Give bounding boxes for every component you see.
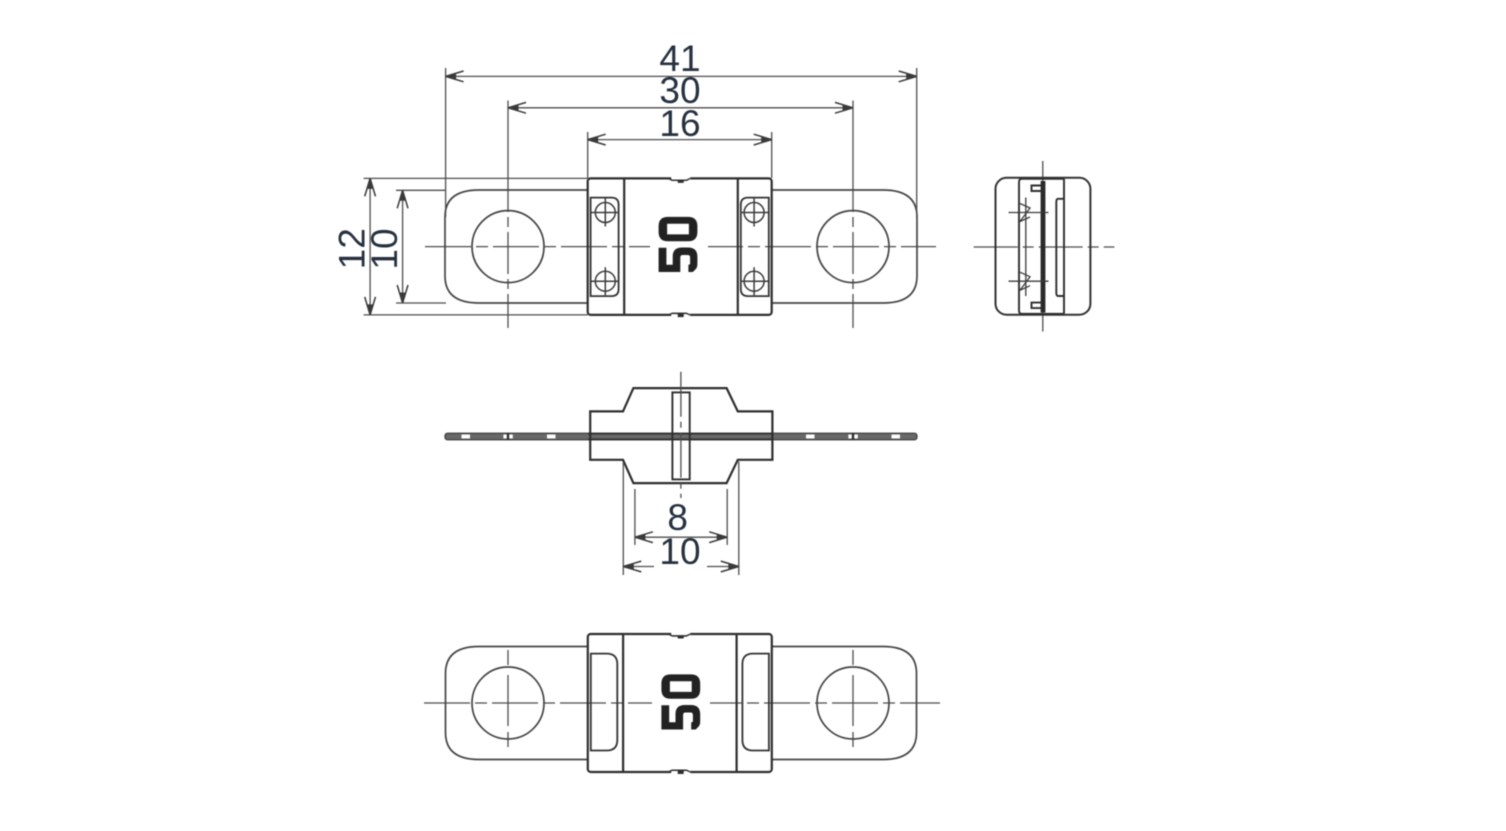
svg-text:10: 10 [364, 228, 405, 269]
svg-text:10: 10 [659, 531, 700, 572]
svg-text:16: 16 [659, 103, 700, 144]
